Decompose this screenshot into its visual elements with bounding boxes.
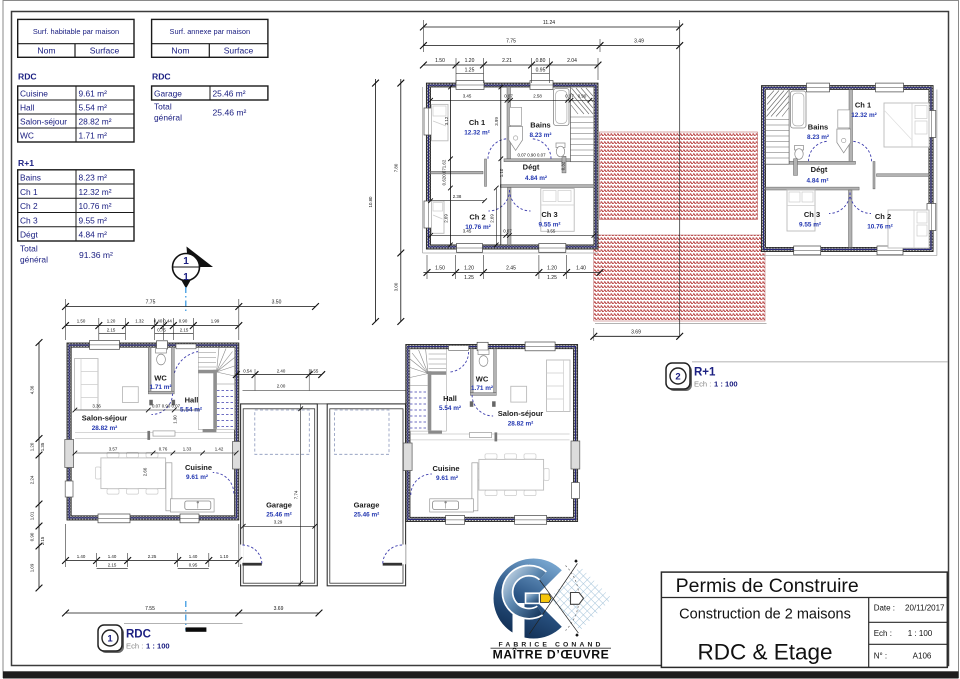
svg-text:28.82 m²: 28.82 m² — [92, 425, 118, 432]
svg-text:WC: WC — [476, 375, 489, 384]
svg-text:Garage: Garage — [154, 89, 182, 99]
svg-text:Ech :: Ech : — [126, 642, 143, 651]
svg-text:3.36: 3.36 — [92, 403, 101, 408]
svg-text:28.82 m²: 28.82 m² — [508, 420, 534, 427]
svg-text:4.36: 4.36 — [30, 385, 35, 394]
svg-text:1.50: 1.50 — [435, 266, 445, 272]
svg-text:1.71 m²: 1.71 m² — [149, 384, 171, 391]
svg-text:9.61 m²: 9.61 m² — [436, 475, 458, 482]
svg-text:0.90: 0.90 — [578, 94, 587, 99]
svg-text:3.45: 3.45 — [463, 94, 472, 99]
svg-text:0.07: 0.07 — [565, 94, 574, 99]
svg-text:0.620.071.62: 0.620.071.62 — [441, 159, 446, 185]
svg-text:général: général — [20, 255, 48, 265]
svg-text:2.15: 2.15 — [107, 327, 116, 332]
svg-text:Bains: Bains — [530, 121, 550, 130]
svg-text:1.25: 1.25 — [465, 68, 475, 74]
svg-text:Salon-séjour: Salon-séjour — [498, 409, 544, 418]
svg-text:20/11/2017: 20/11/2017 — [905, 604, 945, 613]
svg-text:3.99: 3.99 — [494, 117, 499, 126]
svg-text:2.15: 2.15 — [40, 536, 45, 545]
svg-text:9.55 m²: 9.55 m² — [799, 222, 821, 229]
svg-text:4.84 m²: 4.84 m² — [79, 230, 108, 240]
svg-text:A106: A106 — [913, 651, 932, 660]
svg-text:1.20: 1.20 — [107, 318, 116, 323]
svg-text:1.20: 1.20 — [30, 442, 35, 451]
svg-text:2.00: 2.00 — [277, 384, 286, 389]
svg-text:0.07 0.90 0.07: 0.07 0.90 0.07 — [517, 153, 546, 158]
svg-text:8.23 m²: 8.23 m² — [529, 132, 551, 139]
svg-text:Surf. annexe par maison: Surf. annexe par maison — [170, 27, 251, 36]
svg-text:1.99: 1.99 — [211, 318, 220, 323]
svg-text:WC: WC — [154, 374, 167, 383]
svg-text:1.40: 1.40 — [576, 266, 586, 272]
svg-text:12.32 m²: 12.32 m² — [464, 130, 490, 137]
svg-text:3.29: 3.29 — [274, 520, 283, 525]
svg-text:28.82 m²: 28.82 m² — [79, 117, 112, 127]
svg-text:Ch 1: Ch 1 — [469, 118, 485, 127]
svg-text:Total: Total — [154, 102, 172, 112]
svg-text:Construction de 2 maisons: Construction de 2 maisons — [679, 606, 851, 622]
svg-text:Ch 2: Ch 2 — [469, 213, 485, 222]
svg-text:2.04: 2.04 — [567, 58, 577, 64]
svg-text:R+1: R+1 — [18, 158, 34, 168]
svg-text:Total: Total — [20, 244, 38, 254]
svg-text:Dégt: Dégt — [20, 230, 38, 240]
svg-text:0.90: 0.90 — [179, 318, 188, 323]
svg-text:3.49: 3.49 — [634, 39, 644, 45]
svg-text:2.38: 2.38 — [453, 194, 462, 199]
svg-text:Ech :: Ech : — [694, 380, 711, 389]
svg-text:10.76 m²: 10.76 m² — [79, 201, 112, 211]
svg-text:Ch 3: Ch 3 — [804, 210, 820, 219]
svg-text:Ech :: Ech : — [874, 629, 892, 638]
svg-text:Surface: Surface — [224, 46, 254, 56]
svg-text:MAÎTRE D’ŒUVRE: MAÎTRE D’ŒUVRE — [493, 647, 610, 662]
svg-text:Salon-séjour: Salon-séjour — [20, 117, 67, 127]
svg-text:Surface: Surface — [90, 46, 120, 56]
svg-text:2.15: 2.15 — [108, 562, 117, 567]
svg-text:1.35: 1.35 — [40, 442, 45, 451]
svg-text:N° :: N° : — [874, 651, 887, 660]
svg-text:RDC: RDC — [152, 72, 171, 82]
svg-text:Ch 2: Ch 2 — [20, 201, 38, 211]
svg-text:Cuisine: Cuisine — [185, 463, 212, 472]
svg-text:0.40: 0.40 — [154, 318, 163, 323]
svg-text:1.42: 1.42 — [215, 446, 224, 451]
svg-text:Ch 1: Ch 1 — [855, 101, 871, 110]
svg-text:0.55: 0.55 — [310, 368, 319, 373]
svg-text:10.76 m²: 10.76 m² — [867, 224, 893, 231]
svg-text:Date :: Date : — [874, 604, 895, 613]
svg-text:Cuisine: Cuisine — [20, 89, 48, 99]
svg-text:7.75: 7.75 — [506, 39, 516, 45]
svg-text:25.46 m²: 25.46 m² — [213, 108, 247, 118]
svg-text:5.54 m²: 5.54 m² — [439, 405, 461, 412]
svg-text:0.07: 0.07 — [503, 229, 512, 234]
svg-text:1.20: 1.20 — [547, 266, 557, 272]
svg-text:2.69: 2.69 — [444, 214, 449, 223]
svg-text:2.69: 2.69 — [489, 214, 494, 223]
svg-text:3.12: 3.12 — [444, 116, 449, 125]
svg-text:1.20: 1.20 — [464, 266, 474, 272]
svg-text:0.95: 0.95 — [536, 68, 546, 74]
svg-text:Bains: Bains — [808, 123, 828, 132]
svg-text:Dégt: Dégt — [811, 165, 828, 174]
svg-text:1.90: 1.90 — [172, 415, 177, 424]
svg-text:3.57: 3.57 — [109, 446, 118, 451]
svg-text:1.33: 1.33 — [183, 446, 192, 451]
svg-text:25.46 m²: 25.46 m² — [266, 512, 292, 519]
svg-text:9.55 m²: 9.55 m² — [79, 215, 108, 225]
svg-text:1.09: 1.09 — [30, 563, 35, 572]
svg-text:0.07: 0.07 — [504, 94, 513, 99]
svg-text:1: 1 — [183, 256, 189, 267]
svg-text:Hall: Hall — [185, 396, 199, 405]
svg-text:7.74: 7.74 — [294, 490, 299, 499]
svg-text:2.40: 2.40 — [277, 368, 286, 373]
svg-text:7.55: 7.55 — [145, 606, 155, 612]
svg-text:12.32 m²: 12.32 m² — [851, 112, 877, 119]
svg-text:0.76: 0.76 — [159, 446, 168, 451]
svg-text:0.54: 0.54 — [243, 368, 252, 373]
svg-text:Bains: Bains — [20, 173, 41, 183]
svg-text:R+1: R+1 — [694, 367, 716, 379]
svg-text:1: 1 — [183, 272, 189, 283]
svg-text:Surf. habitable par maison: Surf. habitable par maison — [33, 27, 119, 36]
svg-text:Ch 2: Ch 2 — [875, 212, 891, 221]
svg-text:8.23 m²: 8.23 m² — [79, 173, 108, 183]
svg-text:1.50: 1.50 — [77, 318, 86, 323]
svg-text:1.25: 1.25 — [464, 275, 474, 281]
svg-text:Hall: Hall — [20, 103, 35, 113]
svg-text:0.90: 0.90 — [30, 532, 35, 541]
svg-text:2: 2 — [675, 372, 680, 383]
svg-text:3.50: 3.50 — [272, 299, 282, 305]
svg-text:9.61 m²: 9.61 m² — [186, 474, 208, 481]
svg-text:2.45: 2.45 — [506, 266, 516, 272]
svg-text:général: général — [154, 113, 182, 123]
svg-text:1 : 100: 1 : 100 — [146, 642, 170, 651]
svg-text:Garage: Garage — [266, 501, 292, 510]
svg-text:7.75: 7.75 — [146, 299, 156, 305]
svg-text:3.00: 3.00 — [393, 282, 398, 291]
svg-text:1: 1 — [107, 634, 113, 645]
svg-text:2.25: 2.25 — [148, 554, 157, 559]
svg-text:11.24: 11.24 — [543, 20, 555, 26]
svg-text:Ch 3: Ch 3 — [541, 210, 557, 219]
svg-text:Dégt: Dégt — [523, 163, 540, 172]
svg-text:3.55: 3.55 — [547, 229, 556, 234]
svg-text:0.32: 0.32 — [561, 161, 566, 170]
svg-text:91.36 m²: 91.36 m² — [79, 250, 113, 260]
svg-text:10.80: 10.80 — [368, 196, 373, 208]
svg-text:1.32: 1.32 — [135, 318, 144, 323]
svg-text:Nom: Nom — [37, 46, 55, 56]
svg-text:Ch 3: Ch 3 — [20, 215, 38, 225]
svg-text:9.55 m²: 9.55 m² — [538, 222, 560, 229]
svg-text:1 : 100: 1 : 100 — [714, 380, 738, 389]
svg-text:2.66: 2.66 — [142, 467, 147, 476]
svg-text:1.20: 1.20 — [465, 58, 475, 64]
svg-text:1.40: 1.40 — [189, 554, 198, 559]
svg-text:RDC: RDC — [126, 629, 151, 641]
svg-text:Nom: Nom — [171, 46, 189, 56]
svg-text:2.15: 2.15 — [180, 327, 189, 332]
svg-text:1.40: 1.40 — [77, 554, 86, 559]
svg-text:1.50: 1.50 — [435, 58, 445, 64]
svg-text:0.80: 0.80 — [536, 58, 546, 64]
svg-text:2.24: 2.24 — [30, 475, 35, 484]
svg-text:1.71 m²: 1.71 m² — [471, 385, 493, 392]
svg-text:0.95: 0.95 — [189, 562, 198, 567]
svg-text:1.71 m²: 1.71 m² — [79, 131, 108, 141]
svg-text:0.07 0.90 0.07: 0.07 0.90 0.07 — [152, 403, 181, 408]
svg-text:Permis de Construire: Permis de Construire — [676, 575, 859, 597]
svg-text:3.69: 3.69 — [274, 606, 284, 612]
svg-text:1.01: 1.01 — [30, 511, 35, 520]
svg-text:7.80: 7.80 — [393, 163, 398, 172]
svg-text:1.40: 1.40 — [108, 554, 117, 559]
svg-text:4.84 m²: 4.84 m² — [525, 175, 547, 182]
svg-text:9.61 m²: 9.61 m² — [79, 89, 108, 99]
svg-text:25.46 m²: 25.46 m² — [213, 89, 246, 99]
svg-text:3.69: 3.69 — [631, 330, 641, 336]
svg-text:0.44: 0.44 — [163, 318, 172, 323]
svg-text:1 : 100: 1 : 100 — [908, 629, 933, 638]
svg-text:8.23 m²: 8.23 m² — [807, 134, 829, 141]
svg-text:1.10: 1.10 — [499, 168, 504, 177]
svg-text:1.10: 1.10 — [220, 554, 229, 559]
svg-text:WC: WC — [20, 131, 34, 141]
svg-text:5.54 m²: 5.54 m² — [79, 103, 108, 113]
svg-text:Salon-séjour: Salon-séjour — [82, 414, 128, 423]
svg-text:3.45: 3.45 — [463, 229, 472, 234]
svg-text:Garage: Garage — [354, 501, 380, 510]
svg-text:25.46 m²: 25.46 m² — [354, 512, 380, 519]
svg-text:2.58: 2.58 — [533, 94, 542, 99]
svg-text:RDC: RDC — [18, 72, 37, 82]
svg-text:12.32 m²: 12.32 m² — [79, 187, 112, 197]
svg-text:2.21: 2.21 — [502, 58, 512, 64]
svg-text:4.84 m²: 4.84 m² — [806, 178, 828, 185]
svg-text:RDC & Etage: RDC & Etage — [697, 640, 832, 665]
svg-text:Ch 1: Ch 1 — [20, 187, 38, 197]
svg-text:1.25: 1.25 — [547, 275, 557, 281]
svg-text:0.75: 0.75 — [157, 327, 166, 332]
svg-text:Cuisine: Cuisine — [432, 464, 459, 473]
svg-text:Hall: Hall — [443, 394, 457, 403]
